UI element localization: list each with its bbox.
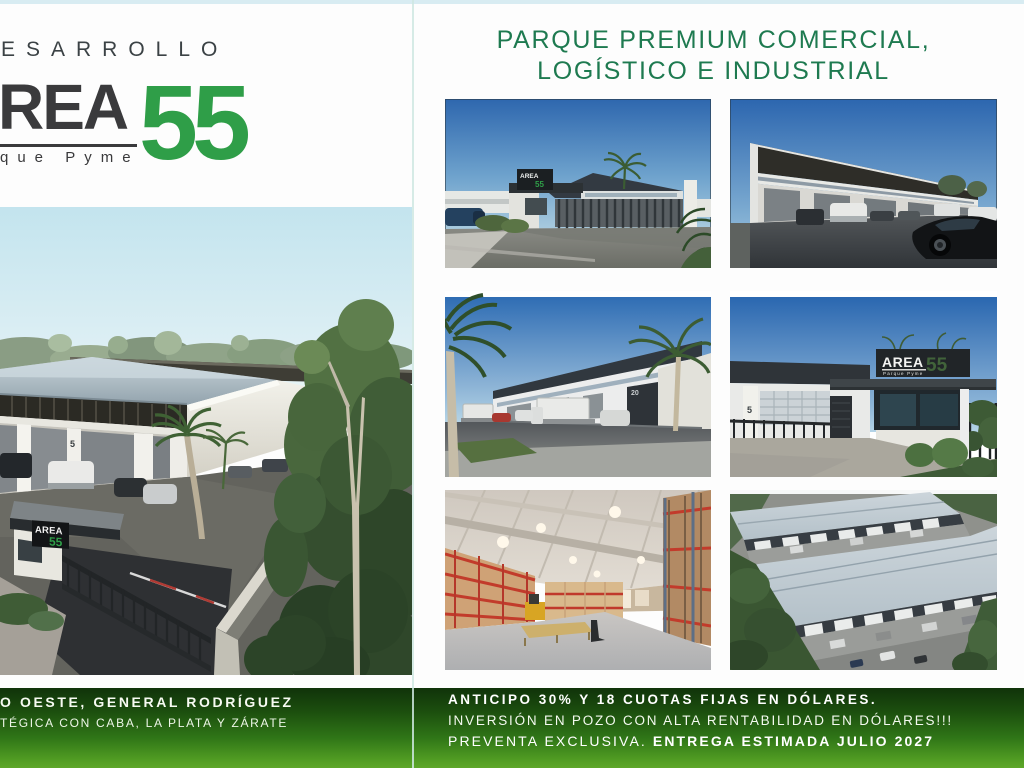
svg-text:AREA: AREA	[520, 173, 539, 180]
svg-text:55: 55	[926, 355, 948, 376]
svg-text:20: 20	[631, 390, 639, 397]
svg-text:5: 5	[747, 405, 752, 415]
svg-text:5: 5	[70, 439, 75, 449]
svg-text:55: 55	[535, 180, 544, 189]
svg-text:55: 55	[49, 534, 63, 549]
svg-text:AREA: AREA	[882, 354, 924, 370]
svg-text:Parque Pyme: Parque Pyme	[883, 371, 923, 376]
